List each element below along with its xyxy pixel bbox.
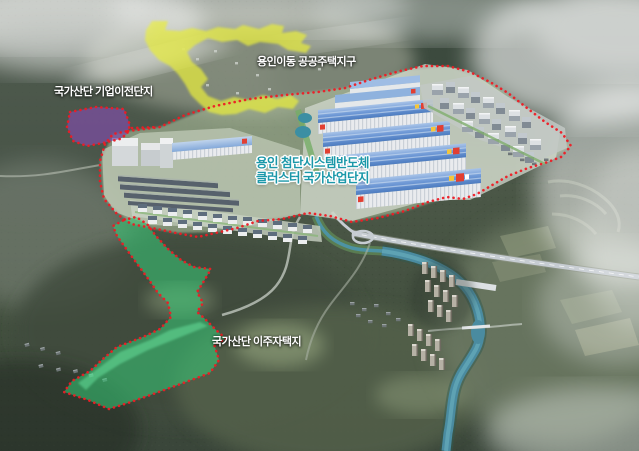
label-semiconductor-cluster: 용인 첨단시스템반도체 클러스터 국가산업단지 — [256, 156, 369, 186]
retention-pond — [298, 113, 312, 123]
label-semiconductor-cluster-line2: 클러스터 국가산업단지 — [256, 171, 369, 186]
label-resettlement-housing: 국가산단 이주자택지 — [212, 333, 301, 349]
local-river-bridge — [462, 326, 490, 328]
label-public-housing-district: 용인이동 공공주택지구 — [257, 53, 356, 69]
label-semiconductor-cluster-line1: 용인 첨단시스템반도체 — [256, 156, 369, 171]
retention-pond — [295, 126, 311, 138]
label-business-relocation-site: 국가산단 기업이전단지 — [54, 83, 153, 99]
aerial-rendering: 용인이동 공공주택지구 국가산단 기업이전단지 용인 첨단시스템반도체 클러스터… — [0, 0, 639, 451]
